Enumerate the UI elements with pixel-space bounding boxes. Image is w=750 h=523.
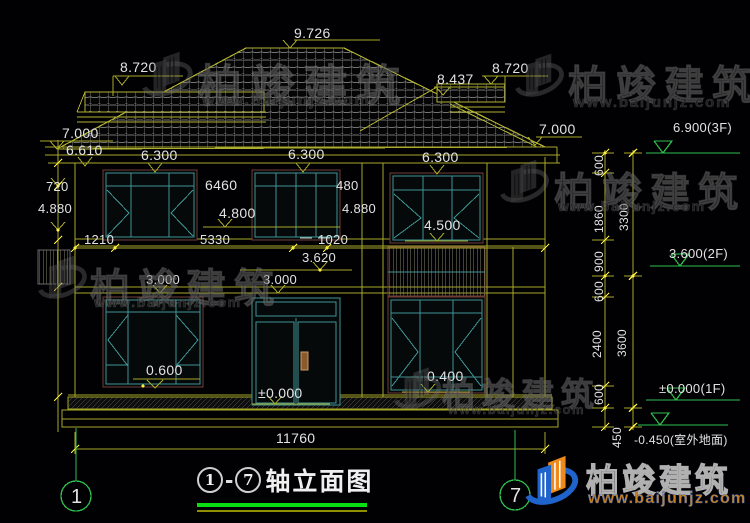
- title-dash: -: [225, 466, 233, 495]
- brand-logo-icon: [524, 450, 582, 512]
- dim-label: 480: [336, 179, 359, 192]
- brand-url-text: www.baijunjz.com: [588, 490, 747, 508]
- louver-panel: [388, 247, 485, 296]
- dim-label: 3.600(2F): [669, 247, 728, 260]
- dim-label: 6460: [205, 178, 237, 192]
- door-handle: [301, 352, 308, 370]
- dim-label: 720: [46, 180, 69, 193]
- title-underline-green: [197, 503, 367, 507]
- dim-label: 3.000: [146, 273, 180, 286]
- dim-label: 0.600: [146, 363, 183, 377]
- dim-label: 3.000: [263, 273, 297, 286]
- dim-label: 6.300: [141, 148, 178, 162]
- dim-label: ±0.000: [258, 386, 303, 400]
- dim-label: 8.720: [492, 61, 529, 75]
- left-section-block: [38, 250, 70, 284]
- drawing-title-block: 1-7轴立面图: [197, 462, 373, 512]
- dim-label: 4.880: [38, 202, 72, 215]
- window-2f-left: [103, 170, 197, 240]
- dim-label: 4.800: [219, 206, 256, 220]
- axis-circle-1: 1: [197, 467, 223, 493]
- dim-label: 4.880: [342, 202, 376, 215]
- dim-label: ±0.000(1F): [659, 382, 726, 395]
- window-2f-center: [252, 170, 340, 240]
- dim-label: 3300: [618, 203, 630, 231]
- dim-label: 8.720: [120, 60, 157, 74]
- dim-label: 900: [593, 251, 605, 272]
- dim-label: 600: [593, 155, 605, 176]
- dim-label: 7.000: [539, 122, 576, 136]
- cad-elevation-screenshot: 9.7268.7208.4378.7207.0006.6107.0006.300…: [0, 0, 750, 523]
- axis-circle-7: 7: [235, 467, 261, 493]
- title-text: 轴立面图: [265, 462, 373, 498]
- dim-label: -0.450(室外地面): [634, 434, 728, 446]
- dim-label: 6.900(3F): [673, 121, 732, 134]
- dormer-roof: [77, 92, 266, 122]
- dim-label: 3.620: [302, 251, 336, 264]
- dim-label: 8.437: [437, 72, 474, 86]
- title-underline-olive: [197, 510, 367, 512]
- axis-bubble-number-left: 1: [71, 487, 82, 507]
- dim-label: 6.300: [288, 147, 325, 161]
- dim-label: 7.000: [62, 126, 99, 140]
- dim-label: 600: [593, 384, 605, 405]
- dim-label: 6.300: [422, 150, 459, 164]
- dim-label: 3600: [616, 329, 628, 357]
- dim-label: 1020: [318, 233, 348, 246]
- dim-label: 5330: [200, 233, 230, 246]
- axis-bubble-number-right: 7: [510, 486, 521, 506]
- drawing-title: 1-7轴立面图: [197, 462, 373, 498]
- dim-label: 450: [611, 427, 623, 448]
- dim-label: 0.400: [427, 369, 464, 383]
- dim-label: 6.610: [66, 143, 103, 157]
- dim-label: 1860: [593, 205, 605, 233]
- dim-label: 9.726: [294, 26, 331, 40]
- brand-logo-block: 柏竣建筑 www.baijunjz.com: [524, 450, 750, 520]
- dim-label: 600: [593, 281, 605, 302]
- dim-label: 4.500: [424, 218, 461, 232]
- dim-label: 2400: [591, 330, 603, 358]
- dim-label: 11760: [276, 431, 315, 445]
- dim-label: 1210: [84, 233, 114, 246]
